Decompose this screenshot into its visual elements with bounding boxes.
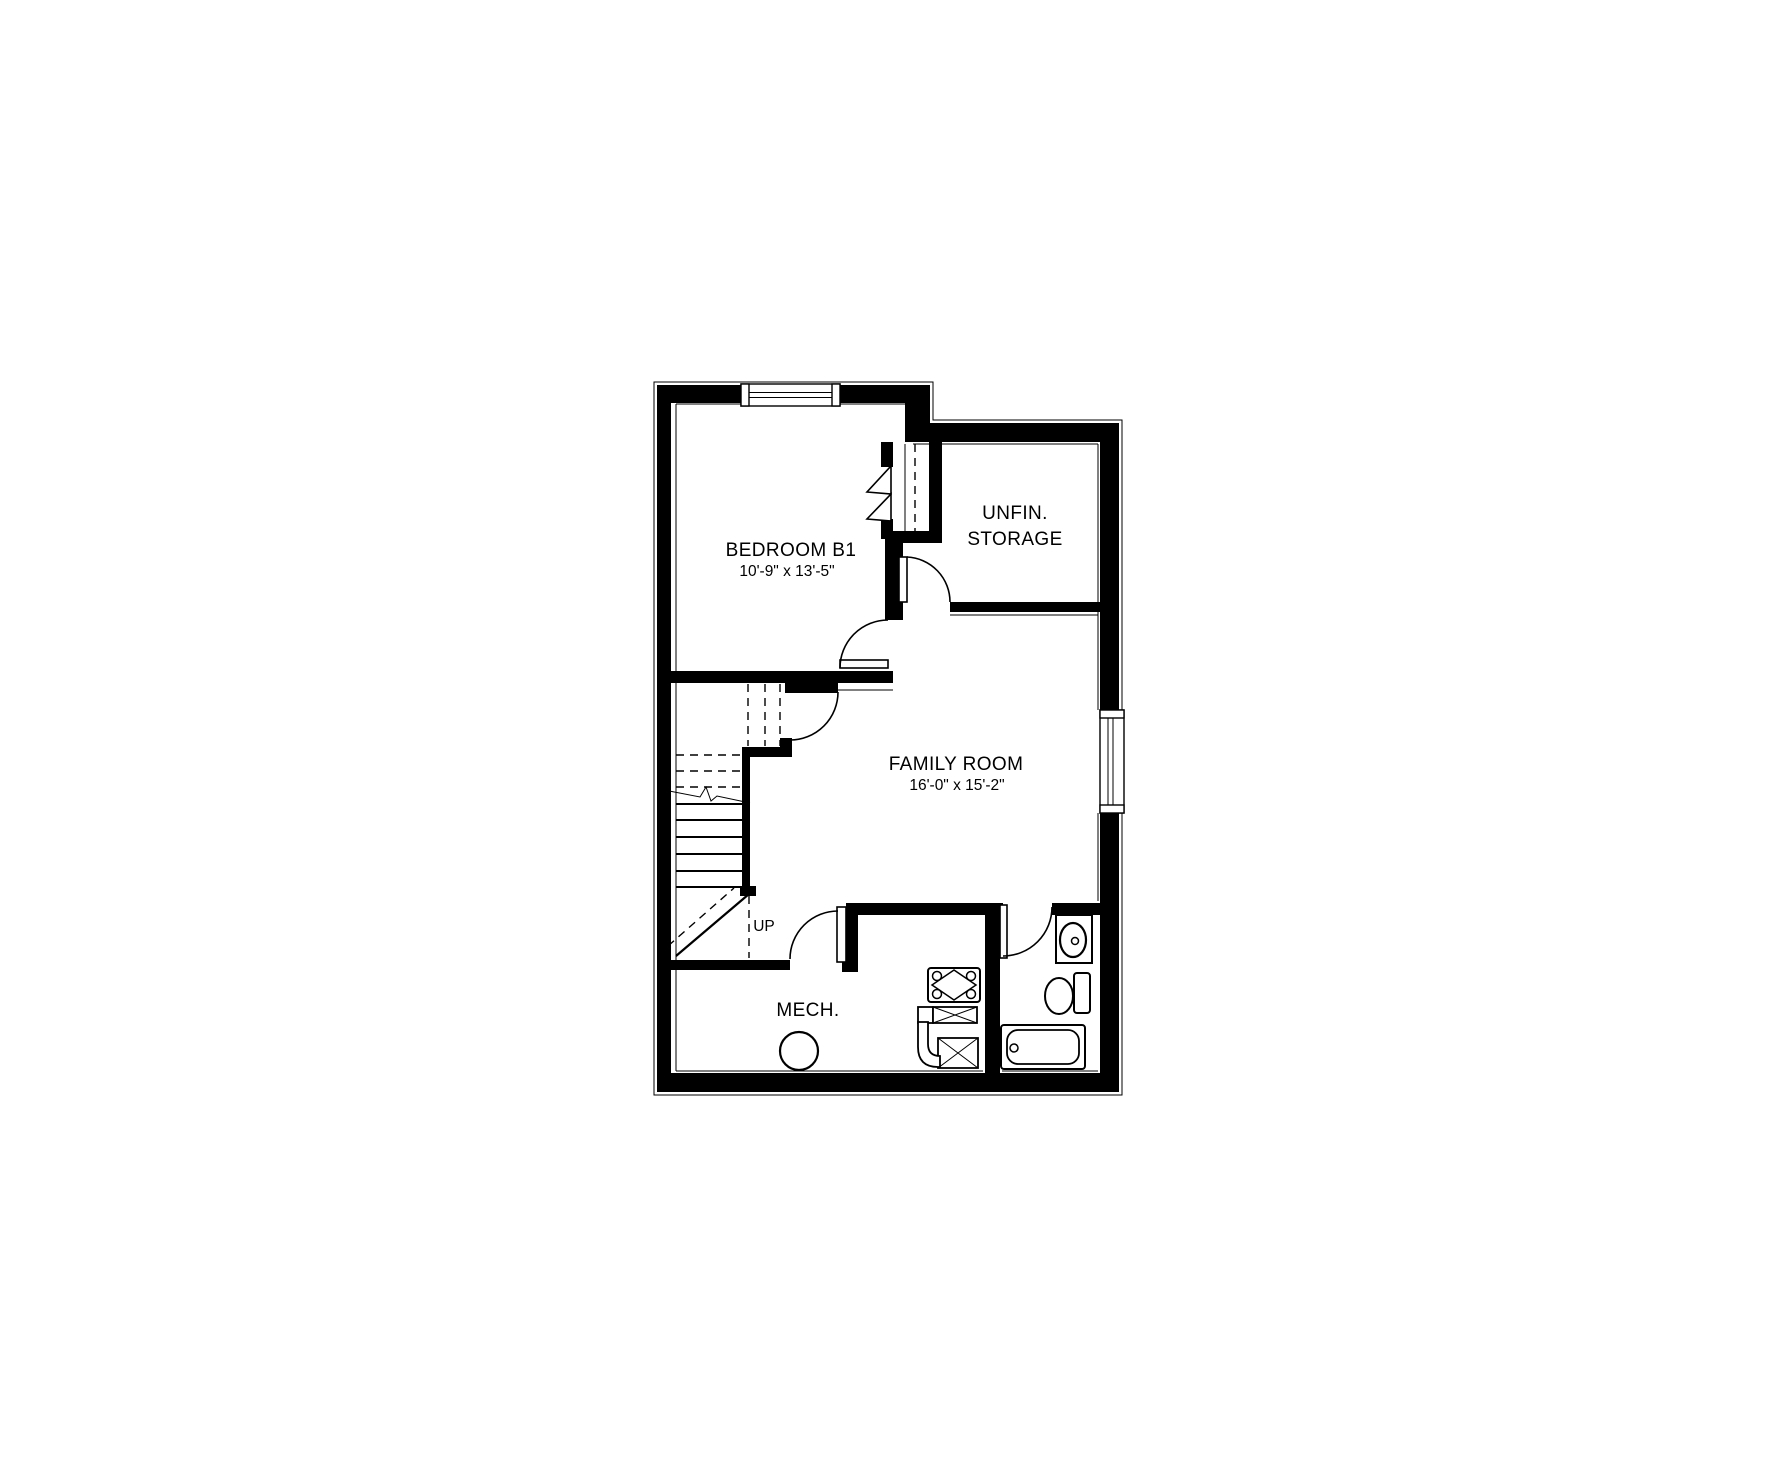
- family-room-dimensions: 16'-0" x 15'-2": [909, 777, 1004, 794]
- duct-elbow: [918, 1022, 940, 1067]
- wall-top-storage: [905, 423, 1119, 442]
- stair-east-wall: [742, 748, 750, 888]
- vanity-sink: [1056, 915, 1092, 963]
- bathtub: [1001, 1025, 1085, 1069]
- stair-treads-solid: [676, 804, 742, 887]
- family-room-window: [1100, 710, 1124, 813]
- family-room-label: FAMILY ROOM: [889, 754, 1024, 775]
- bedroom-south-wall: [657, 671, 893, 683]
- stair-opening-dashed-lines: [748, 684, 780, 746]
- wall-bottom: [657, 1073, 1119, 1092]
- storage-door: [899, 557, 950, 602]
- storage-south-wall: [950, 602, 1100, 612]
- floor-drain: [780, 1032, 818, 1070]
- storage-label-line2: STORAGE: [967, 529, 1062, 550]
- wall-left: [657, 385, 671, 1092]
- stair-treads-upper-dashed: [676, 755, 740, 787]
- bedroom-door: [840, 620, 888, 668]
- stairs-up-label: UP: [753, 918, 775, 935]
- bedroom-window: [741, 384, 840, 406]
- stair-hall-door: [785, 683, 838, 740]
- mech-door: [790, 907, 846, 962]
- furnace: [928, 968, 980, 1002]
- bedroom-dimensions: 10'-9" x 13'-5": [739, 563, 834, 580]
- under-stair-dashed-line: [668, 888, 734, 946]
- bedroom-label: BEDROOM B1: [726, 540, 857, 561]
- storage-west-wall: [929, 442, 942, 543]
- bath-west-wall: [985, 903, 1000, 1073]
- mech-label: MECH.: [776, 1000, 839, 1021]
- bathroom-door: [1000, 905, 1052, 958]
- stair-break-line: [664, 787, 750, 803]
- vanity-north-wall: [1052, 903, 1100, 915]
- toilet: [1045, 973, 1090, 1014]
- staircase: [664, 684, 780, 958]
- floor-plan-drawing: BEDROOM B1 10'-9" x 13'-5" UNFIN. STORAG…: [0, 0, 1780, 1480]
- under-stair-wall-line: [676, 894, 749, 956]
- mech-north-wall: [657, 960, 790, 970]
- alcove-north-wall: [846, 903, 1003, 915]
- closet-stub-top: [881, 442, 893, 467]
- storage-label-line1: UNFIN.: [982, 503, 1048, 524]
- floor-plan-page: BEDROOM B1 10'-9" x 13'-5" UNFIN. STORAG…: [0, 0, 1780, 1480]
